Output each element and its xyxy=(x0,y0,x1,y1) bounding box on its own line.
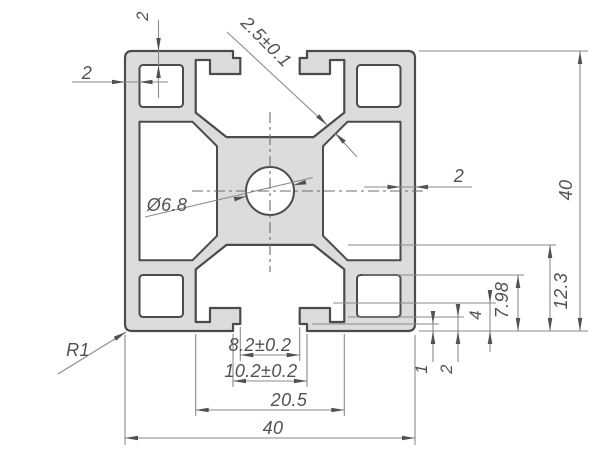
dim-top-wall-label: 2 xyxy=(134,11,152,22)
dim-overall-width-label: 40 xyxy=(263,418,284,438)
corner-screw-channel-top-left xyxy=(140,65,184,107)
dim-web-thickness-label: 2.5±0.1 xyxy=(236,12,295,71)
dim-lip-ledge-height-label: 1 xyxy=(413,364,431,374)
dim-overall-height-label: 40 xyxy=(556,180,576,201)
dim-left-wall-label: 2 xyxy=(81,63,92,83)
corner-screw-channel-bottom-left xyxy=(140,275,184,317)
dim-channel-width-label: 20.5 xyxy=(270,390,308,410)
side-cavity-left xyxy=(140,122,218,261)
dim-slot-tab-width-label: 8.2±0.2 xyxy=(229,335,292,355)
dim-lip-root-height-label: 2 xyxy=(438,364,456,375)
technical-drawing-canvas: 2 2 2.5±0.1 Ø6.8 2 40 12.3 7.98 4 2 1 8.… xyxy=(0,0,600,450)
dim-right-wall-label: 2 xyxy=(453,166,464,186)
dim-center-hole-label: Ø6.8 xyxy=(146,195,188,215)
dim-lip-tip-height-label: 4 xyxy=(467,310,485,320)
dim-corner-radius-label: R1 xyxy=(66,340,90,360)
dim-corner-hole-height-label: 7.98 xyxy=(492,282,512,319)
dim-slot-depth-label: 12.3 xyxy=(551,273,571,310)
corner-screw-channel-bottom-right xyxy=(357,275,401,317)
dim-slot-opening-width-label: 10.2±0.2 xyxy=(224,361,297,381)
corner-screw-channel-top-right xyxy=(357,65,401,107)
drawing-page: 2 2 2.5±0.1 Ø6.8 2 40 12.3 7.98 4 2 1 8.… xyxy=(0,0,600,450)
